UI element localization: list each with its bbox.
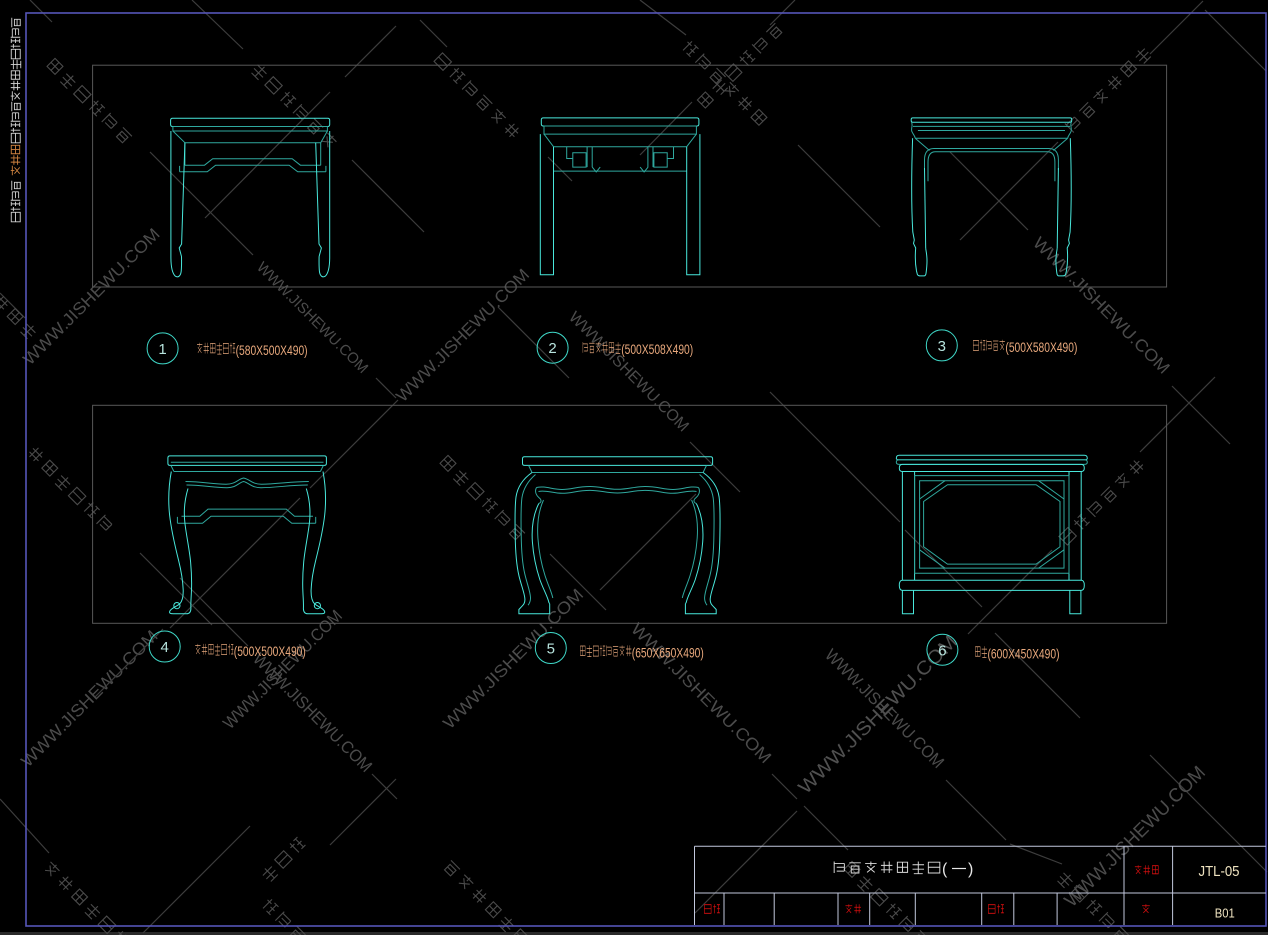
svg-text:(600X450X490): (600X450X490)	[988, 646, 1060, 661]
svg-text:6: 6	[938, 642, 946, 659]
svg-text:(650X650X490): (650X650X490)	[632, 646, 704, 661]
svg-text:JTL-05: JTL-05	[1199, 863, 1240, 880]
svg-text:(500X580X490): (500X580X490)	[1005, 340, 1077, 355]
svg-text:(580X500X490): (580X500X490)	[236, 343, 308, 358]
svg-text:(500X500X490): (500X500X490)	[234, 644, 306, 659]
svg-text:3: 3	[938, 338, 946, 355]
svg-text:): )	[968, 861, 973, 878]
svg-text:(: (	[942, 861, 948, 878]
svg-text:5: 5	[547, 641, 555, 658]
svg-text:1: 1	[158, 341, 166, 358]
svg-text:4: 4	[161, 639, 169, 656]
svg-text:B01: B01	[1215, 906, 1235, 921]
svg-text:(500X508X490): (500X508X490)	[621, 342, 693, 357]
svg-text:2: 2	[548, 340, 556, 357]
